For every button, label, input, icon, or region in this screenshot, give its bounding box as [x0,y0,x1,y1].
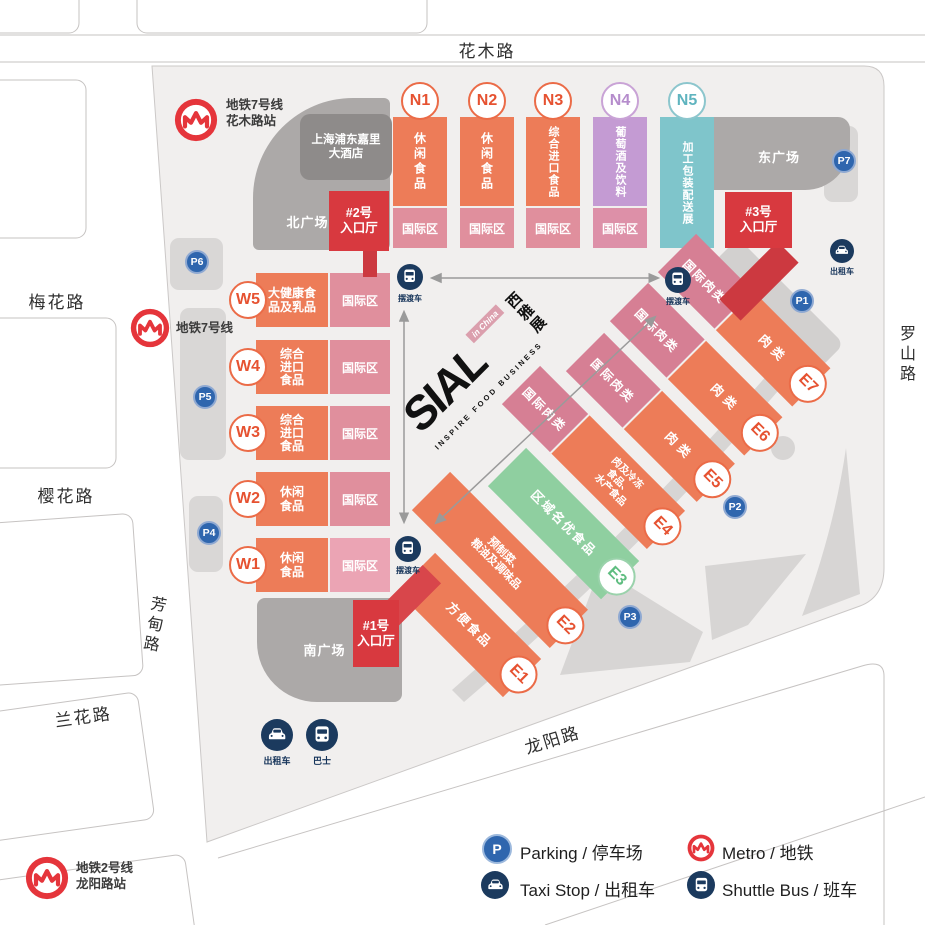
hall-n2: N2 休闲食品 国际区 [460,117,514,248]
hall-w5: W5 大健康食 品及乳品 国际区 [256,273,390,327]
hall-w1-badge: W1 [229,546,267,584]
hall-w3-zone: 国际区 [330,406,390,460]
shuttle-bus-icon [395,536,421,562]
sial-logo-badge: in China [465,304,504,343]
hall-n5-category: 加工包装配送展 [660,117,714,248]
hall-w2-id: W2 [236,490,260,508]
hall-n4-category: 葡萄酒及饮料 [593,117,647,206]
hall-n2-category: 休闲食品 [460,117,514,206]
hall-e4-id: E4 [649,513,676,540]
hall-w2-zone: 国际区 [330,472,390,526]
shuttle-bus-icon [665,267,691,293]
taxi-stop-label: 出租车 [255,754,299,767]
parking-badge-p7: P7 [832,149,856,173]
hall-n1-id: N1 [410,92,430,110]
parking-badge-p4: P4 [197,521,221,545]
hall-n2-id: N2 [477,92,497,110]
city-block [0,0,79,33]
hall-w5-id: W5 [236,291,260,309]
hall-n3-badge: N3 [534,82,572,120]
hall-n5: N5 加工包装配送展 [660,117,714,248]
parking-badge-p6: P6 [185,250,209,274]
hall-n4-zone: 国际区 [593,208,647,248]
taxi-stop-label: 出租车 [820,266,864,277]
city-block [0,318,116,468]
hall-w1-zone: 国际区 [330,538,390,592]
hall-n1-zone: 国际区 [393,208,447,248]
hall-w1: W1 休闲 食品 国际区 [256,538,390,592]
hall-n1-badge: N1 [401,82,439,120]
hall-w4-zone: 国际区 [330,340,390,394]
metro-icon [130,308,170,348]
sial-logo-chinese: 西雅展 [500,288,551,339]
hall-w3: W3 综合 进口 食品 国际区 [256,406,390,460]
road-label-lanhua: 兰花路 [32,696,135,735]
hall-n5-badge: N5 [668,82,706,120]
entrance2-connector [363,249,377,277]
hall-n3-category: 综合进口食品 [526,117,580,206]
legend-parking-label: Parking / 停车场 [520,839,643,864]
hall-e2-id: E2 [552,612,579,639]
taxi-icon [830,239,854,263]
legend-metro-label: Metro / 地铁 [722,839,814,864]
hall-w1-id: W1 [236,556,260,574]
metro-icon [687,834,715,862]
road-label-yinghua: 樱花路 [16,482,116,507]
shuttle-bus-icon [397,264,423,290]
hall-w3-badge: W3 [229,414,267,452]
hall-w4: W4 综合 进口 食品 国际区 [256,340,390,394]
hall-w3-id: W3 [236,424,260,442]
parking-badge-p1: P1 [790,289,814,313]
bus-icon [306,719,338,751]
hall-n2-badge: N2 [468,82,506,120]
hall-w2-badge: W2 [229,480,267,518]
parking-area [802,448,860,616]
shuttle-bus-icon [687,871,715,899]
road-label-longyang: 龙阳路 [501,712,604,765]
shuttle-stop-label: 摆渡车 [656,296,700,307]
shuttle-stop-label: 摆渡车 [388,293,432,304]
shuttle-stop-label: 摆渡车 [386,565,430,576]
hall-n3-id: N3 [543,92,563,110]
city-block [0,80,86,238]
metro-line7-label: 地铁7号线 [176,320,233,336]
hall-n4-badge: N4 [601,82,639,120]
legend-taxi-label: Taxi Stop / 出租车 [520,876,655,901]
hall-e3-id: E3 [603,563,630,590]
parking-badge-p5: P5 [193,385,217,409]
hall-e1-id: E1 [505,661,532,688]
legend-shuttle-label: Shuttle Bus / 班车 [722,876,857,901]
hall-n4-id: N4 [610,92,630,110]
city-block [0,513,143,686]
hall-n3-zone: 国际区 [526,208,580,248]
hall-n1: N1 休闲食品 国际区 [393,117,447,248]
road-label-meihua: 梅花路 [7,288,107,313]
hall-w2: W2 休闲 食品 国际区 [256,472,390,526]
hall-e5-id: E5 [699,466,726,493]
parking-badge-p3: P3 [618,605,642,629]
entrance-hall-2: #2号 入口厅 [329,191,389,251]
taxi-icon [261,719,293,751]
parking-badge-p2: P2 [723,495,747,519]
hall-e7-id: E7 [795,371,822,398]
entrance-hall-3: #3号 入口厅 [725,192,792,248]
entrance-hall-1: #1号 入口厅 [353,600,399,667]
road-label-huamu: 花木路 [437,37,537,62]
hall-w4-id: W4 [236,358,260,376]
hall-e6-id: E6 [747,420,774,447]
road-label-luoshan: 罗山路 [893,325,917,385]
city-block [137,0,427,33]
metro-line7-huamu-label: 地铁7号线 花木路站 [226,97,283,129]
parking-icon: P [482,834,512,864]
hall-w5-badge: W5 [229,281,267,319]
hotel-block: 上海浦东嘉里 大酒店 [300,114,392,180]
hall-n4: N4 葡萄酒及饮料 国际区 [593,117,647,248]
sial-logo-wordmark: SIAL [396,336,494,440]
hall-n2-zone: 国际区 [460,208,514,248]
road-label-fangdian: 芳甸路 [135,593,169,656]
taxi-icon [481,871,509,899]
metro-line2-longyang-label: 地铁2号线 龙阳路站 [76,860,133,892]
metro-icon [25,856,69,900]
parking-area [705,554,806,640]
hall-n1-category: 休闲食品 [393,117,447,206]
hall-w4-badge: W4 [229,348,267,386]
bus-stop-label: 巴士 [300,754,344,767]
venue-map: 北广场 上海浦东嘉里 大酒店 东广场 南广场 #2号 入口厅 #3号 入口厅 #… [0,0,925,925]
metro-icon [174,98,218,142]
hall-n5-id: N5 [677,92,697,110]
east-plaza-label: 东广场 [739,147,819,166]
hall-n3: N3 综合进口食品 国际区 [526,117,580,248]
hall-w5-zone: 国际区 [330,273,390,327]
